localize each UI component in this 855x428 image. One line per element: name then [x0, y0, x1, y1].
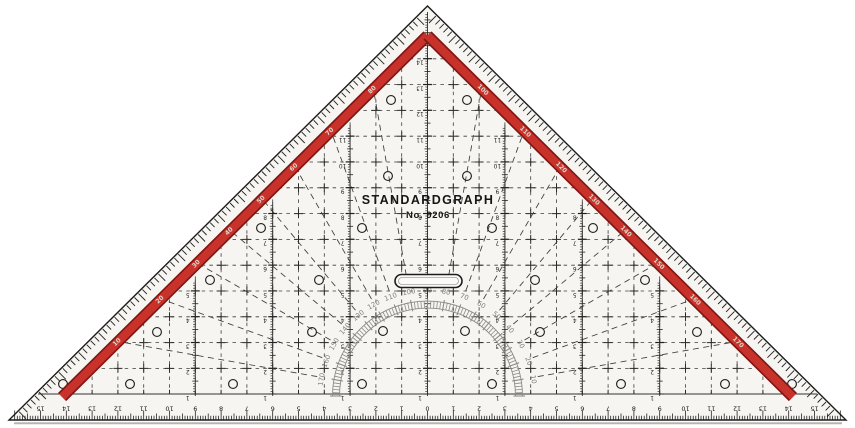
svg-text:3: 3: [263, 342, 267, 348]
svg-text:5: 5: [186, 291, 190, 297]
svg-text:9: 9: [193, 405, 197, 413]
svg-text:10: 10: [681, 405, 689, 413]
svg-text:10: 10: [529, 374, 538, 384]
svg-text:6: 6: [495, 265, 499, 271]
svg-text:1: 1: [451, 405, 455, 413]
svg-text:7: 7: [340, 239, 344, 245]
svg-text:14: 14: [416, 59, 424, 65]
svg-text:1: 1: [650, 394, 654, 400]
svg-text:4: 4: [322, 405, 326, 413]
svg-text:12: 12: [114, 405, 122, 413]
svg-text:14: 14: [785, 405, 793, 413]
svg-text:10: 10: [339, 162, 347, 168]
svg-text:9: 9: [340, 188, 344, 194]
svg-text:9: 9: [658, 405, 662, 413]
svg-text:13: 13: [416, 84, 424, 90]
svg-text:1: 1: [418, 394, 422, 400]
svg-text:6: 6: [580, 405, 584, 413]
svg-text:5: 5: [495, 291, 499, 297]
svg-text:2: 2: [418, 368, 422, 374]
svg-text:3: 3: [495, 342, 499, 348]
svg-text:7: 7: [263, 239, 267, 245]
svg-text:2: 2: [650, 368, 654, 374]
svg-text:11: 11: [339, 136, 347, 142]
svg-text:8: 8: [495, 213, 499, 219]
svg-text:3: 3: [348, 405, 352, 413]
set-square-triangle: 1234512345678123456789101112345678910111…: [0, 0, 855, 428]
svg-text:4: 4: [529, 405, 533, 413]
svg-text:5: 5: [263, 291, 267, 297]
svg-text:8: 8: [573, 213, 577, 219]
svg-text:12: 12: [733, 405, 741, 413]
svg-text:4: 4: [186, 317, 190, 323]
svg-text:4: 4: [263, 317, 267, 323]
svg-text:5: 5: [650, 291, 654, 297]
handle-grip[interactable]: [395, 275, 462, 288]
svg-text:8: 8: [340, 213, 344, 219]
svg-text:11: 11: [416, 136, 424, 142]
svg-text:7: 7: [245, 405, 249, 413]
svg-text:1: 1: [400, 405, 404, 413]
svg-text:7: 7: [606, 405, 610, 413]
svg-text:14: 14: [62, 405, 70, 413]
svg-text:4: 4: [573, 317, 577, 323]
svg-text:15: 15: [810, 405, 818, 413]
svg-text:1: 1: [186, 394, 190, 400]
svg-text:8: 8: [632, 405, 636, 413]
svg-text:7: 7: [573, 239, 577, 245]
svg-text:2: 2: [495, 368, 499, 374]
svg-text:4: 4: [340, 317, 344, 323]
svg-text:6: 6: [573, 265, 577, 271]
svg-text:6: 6: [418, 265, 422, 271]
svg-text:3: 3: [186, 342, 190, 348]
svg-text:5: 5: [573, 291, 577, 297]
svg-text:6: 6: [263, 265, 267, 271]
svg-text:1: 1: [340, 394, 344, 400]
svg-text:7: 7: [418, 239, 422, 245]
svg-text:10: 10: [165, 405, 173, 413]
svg-text:5: 5: [296, 405, 300, 413]
svg-text:11: 11: [493, 136, 501, 142]
svg-text:1: 1: [495, 394, 499, 400]
svg-text:10: 10: [493, 162, 501, 168]
svg-text:4: 4: [650, 317, 654, 323]
svg-text:11: 11: [707, 405, 715, 413]
photo-canvas: 1234512345678123456789101112345678910111…: [0, 0, 855, 428]
svg-text:3: 3: [573, 342, 577, 348]
svg-text:3: 3: [650, 342, 654, 348]
svg-text:5: 5: [554, 405, 558, 413]
svg-text:15: 15: [36, 405, 44, 413]
svg-text:8: 8: [263, 213, 267, 219]
svg-text:2: 2: [573, 368, 577, 374]
svg-text:2: 2: [477, 405, 481, 413]
svg-text:5: 5: [418, 291, 422, 297]
svg-text:2: 2: [186, 368, 190, 374]
svg-text:10: 10: [416, 162, 424, 168]
svg-text:6: 6: [271, 405, 275, 413]
svg-text:2: 2: [374, 405, 378, 413]
svg-text:1: 1: [573, 394, 577, 400]
svg-text:0: 0: [425, 405, 429, 413]
svg-text:3: 3: [418, 342, 422, 348]
svg-text:11: 11: [140, 405, 148, 413]
svg-text:4: 4: [418, 317, 422, 323]
svg-text:6: 6: [340, 265, 344, 271]
svg-text:5: 5: [340, 291, 344, 297]
svg-text:9: 9: [495, 188, 499, 194]
svg-text:2: 2: [263, 368, 267, 374]
svg-text:80: 80: [441, 287, 451, 296]
model-text: No. 9206: [406, 210, 450, 221]
svg-text:8: 8: [219, 405, 223, 413]
svg-text:1: 1: [263, 394, 267, 400]
svg-text:7: 7: [495, 239, 499, 245]
svg-text:3: 3: [503, 405, 507, 413]
svg-text:13: 13: [88, 405, 96, 413]
svg-text:12: 12: [416, 110, 424, 116]
brand-text: STANDARDGRAPH: [362, 193, 495, 207]
svg-text:13: 13: [759, 405, 767, 413]
